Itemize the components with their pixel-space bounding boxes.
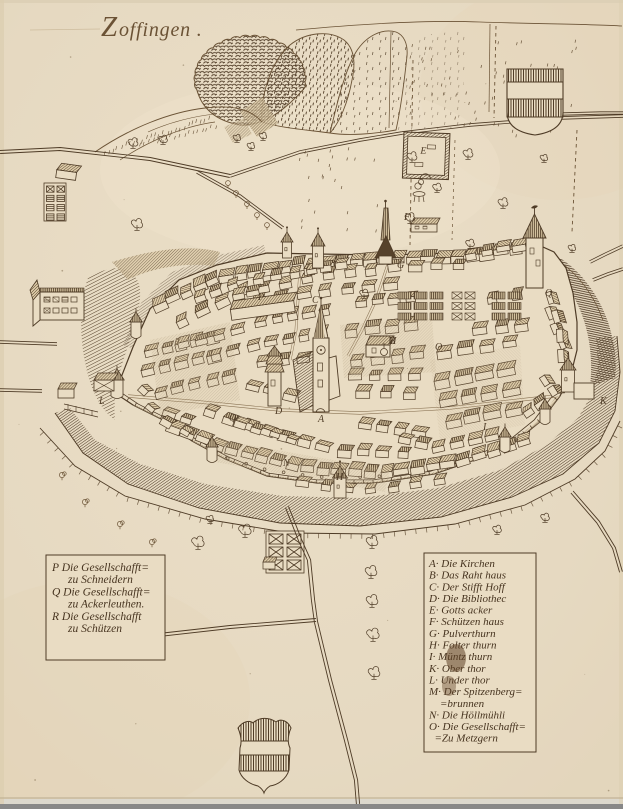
svg-text:E: E	[419, 146, 426, 157]
svg-text:M: M	[387, 336, 397, 347]
svg-text:=Zu Metzgern: =Zu Metzgern	[429, 733, 498, 745]
svg-text:=brunnen: =brunnen	[429, 698, 485, 710]
svg-text:D· Die Bibliothec: D· Die Bibliothec	[428, 593, 506, 605]
svg-text:zu Schneidern: zu Schneidern	[67, 574, 133, 586]
svg-text:A: A	[317, 414, 325, 425]
svg-text:B· Das Raht haus: B· Das Raht haus	[429, 570, 506, 582]
svg-text:O: O	[435, 342, 442, 353]
svg-text:F· Schützen haus: F· Schützen haus	[428, 616, 504, 628]
svg-text:A· Die Kirchen: A· Die Kirchen	[428, 558, 495, 570]
svg-text:C· Der Stifft Hoff: C· Der Stifft Hoff	[429, 581, 507, 593]
svg-text:E· Gotts acker: E· Gotts acker	[428, 605, 493, 617]
svg-text:L: L	[98, 396, 105, 407]
svg-text:P: P	[257, 292, 264, 303]
svg-text:O· Die Gesellschafft=: O· Die Gesellschafft=	[429, 721, 526, 733]
svg-text:zu Ackerleuthen.: zu Ackerleuthen.	[67, 599, 144, 611]
svg-text:Q Die Gesellschafft=: Q Die Gesellschafft=	[52, 586, 150, 598]
svg-text:L· Under thor: L· Under thor	[428, 675, 491, 687]
svg-text:P Die Gesellschafft=: P Die Gesellschafft=	[51, 562, 149, 574]
svg-text:Q: Q	[229, 413, 237, 424]
svg-text:offingen .: offingen .	[119, 19, 203, 41]
svg-text:G· Pulverthurn: G· Pulverthurn	[429, 628, 496, 640]
svg-text:zu Schützen: zu Schützen	[67, 623, 122, 635]
svg-text:G: G	[397, 260, 404, 271]
svg-text:N· Die Höllmühli: N· Die Höllmühli	[428, 709, 505, 721]
svg-text:C: C	[312, 295, 319, 306]
svg-text:R Die Gesellschafft: R Die Gesellschafft	[51, 611, 142, 623]
svg-text:Z: Z	[101, 11, 118, 43]
svg-text:N: N	[282, 458, 291, 469]
svg-text:I: I	[482, 422, 487, 433]
svg-text:D: D	[274, 406, 283, 417]
svg-text:H: H	[335, 472, 344, 483]
svg-text:K: K	[599, 396, 608, 407]
svg-text:Q: Q	[545, 288, 553, 299]
